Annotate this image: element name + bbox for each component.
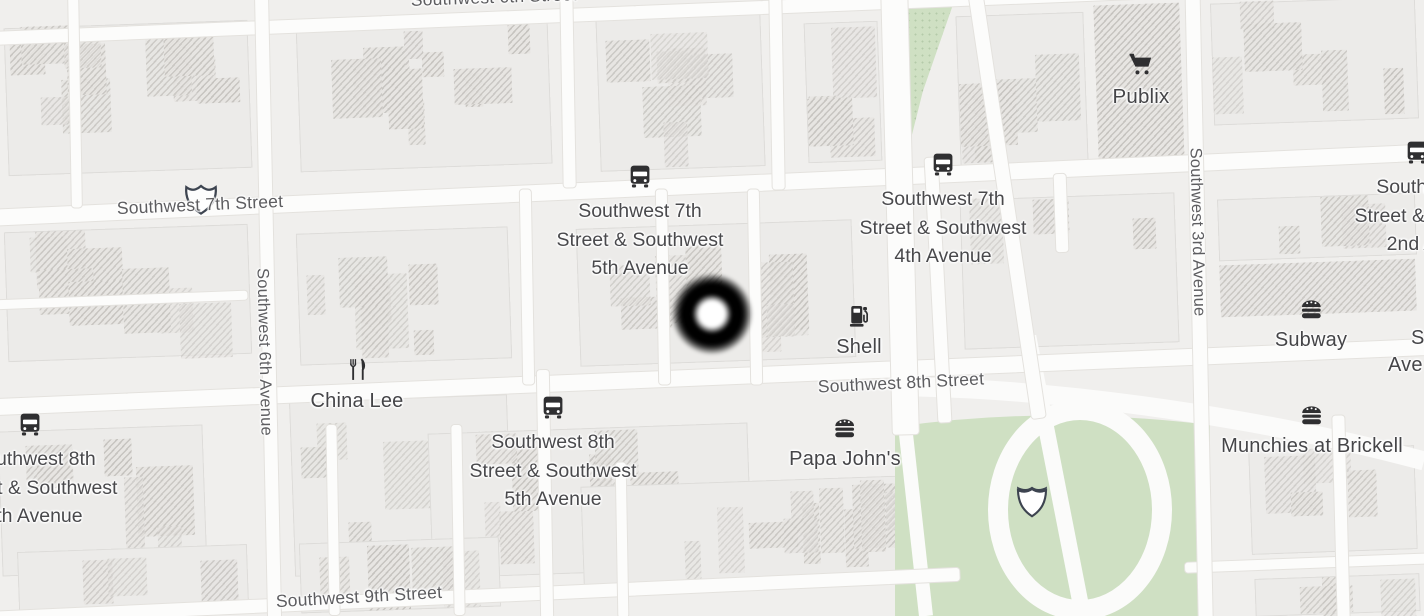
bus-stop-label: Southwest 7th — [557, 197, 724, 226]
sandwich-icon — [1300, 404, 1325, 432]
poi-china-lee[interactable]: China Lee — [311, 357, 404, 413]
road — [0, 290, 249, 311]
poi-label: Munchies at Brickell — [1221, 435, 1403, 458]
bus-icon — [931, 152, 954, 182]
road — [519, 188, 535, 385]
bus-icon — [541, 395, 564, 425]
bus-stop-label: Southwest 7th — [860, 185, 1027, 214]
bus-stop-label: Street & Southwest — [557, 226, 724, 255]
road — [1053, 173, 1070, 253]
bus-stop-label: 5th Avenue — [470, 485, 637, 514]
street-label-ave6th: Southwest 6th Avenue — [252, 268, 275, 436]
bus-stop-label: 7th Avenue — [0, 502, 117, 531]
bus-stop-sw7th-5th-ave[interactable]: Southwest 7th Street & Southwest 5th Ave… — [557, 164, 724, 283]
road — [0, 0, 1424, 48]
poi-label: Publix — [1112, 85, 1169, 109]
poi-shell[interactable]: Shell — [836, 304, 881, 359]
bus-stop-label: Southwest 7th — [1355, 173, 1424, 202]
poi-label: Shell — [836, 336, 881, 359]
bus-stop-sw7th-4th-ave[interactable]: Southwest 7th Street & Southwest 4th Ave… — [860, 152, 1027, 271]
bus-stop-sw7th-2nd-ave[interactable]: Southwest 7th Street & Southwest 2nd Ave… — [1355, 140, 1424, 259]
bus-icon — [1405, 140, 1424, 170]
road — [559, 0, 576, 189]
fuel-icon — [848, 304, 870, 333]
sandwich-icon — [1298, 298, 1323, 326]
poi-subway[interactable]: Subway — [1275, 298, 1347, 352]
poi-papa-johns[interactable]: Papa John's — [789, 417, 901, 471]
bus-stop-label: 4th Avenue — [860, 242, 1027, 271]
cursor-marker — [666, 268, 758, 360]
bus-stop-label: Street & Southwest — [0, 474, 117, 503]
bus-stop-label: Street & Southwest — [470, 457, 637, 486]
cart-icon — [1127, 52, 1154, 82]
bus-icon — [18, 412, 41, 442]
road — [450, 424, 465, 616]
street-label-ave3rd: Southwest 3rd Avenue — [1185, 147, 1208, 316]
poi-label: Papa John's — [789, 448, 901, 471]
poi-label: Subway — [1275, 329, 1347, 352]
restaurant-icon — [346, 357, 367, 387]
bus-stop-sw8th-5th-ave[interactable]: Southwest 8th Street & Southwest 5th Ave… — [470, 395, 637, 514]
bus-stop-label: 2nd Avenue — [1355, 230, 1424, 259]
bus-stop-label: Street & Southwest — [860, 214, 1027, 243]
bus-icon — [628, 164, 651, 194]
partial-label-line1: S — [1411, 327, 1424, 350]
road — [768, 0, 785, 191]
bus-stop-label: Street & Southwest — [1355, 202, 1424, 231]
road — [0, 567, 961, 616]
poi-munchies-at-brickell[interactable]: Munchies at Brickell — [1221, 404, 1403, 458]
poi-publix[interactable]: Publix — [1112, 52, 1169, 109]
bus-stop-label: Southwest 8th — [470, 428, 637, 457]
bus-stop-label: Southwest 8th — [0, 445, 117, 474]
bus-stop-sw8th-7th-ave[interactable]: Southwest 8th Street & Southwest 7th Ave… — [0, 412, 117, 531]
map-canvas[interactable]: Southwest 6th Street Southwest 7th Stree… — [0, 0, 1424, 616]
partial-label-line2: Ave — [1388, 354, 1423, 377]
poi-label: China Lee — [311, 390, 404, 413]
sandwich-icon — [833, 417, 858, 445]
interstate-shield-icon — [1015, 483, 1049, 525]
road — [1184, 552, 1424, 574]
